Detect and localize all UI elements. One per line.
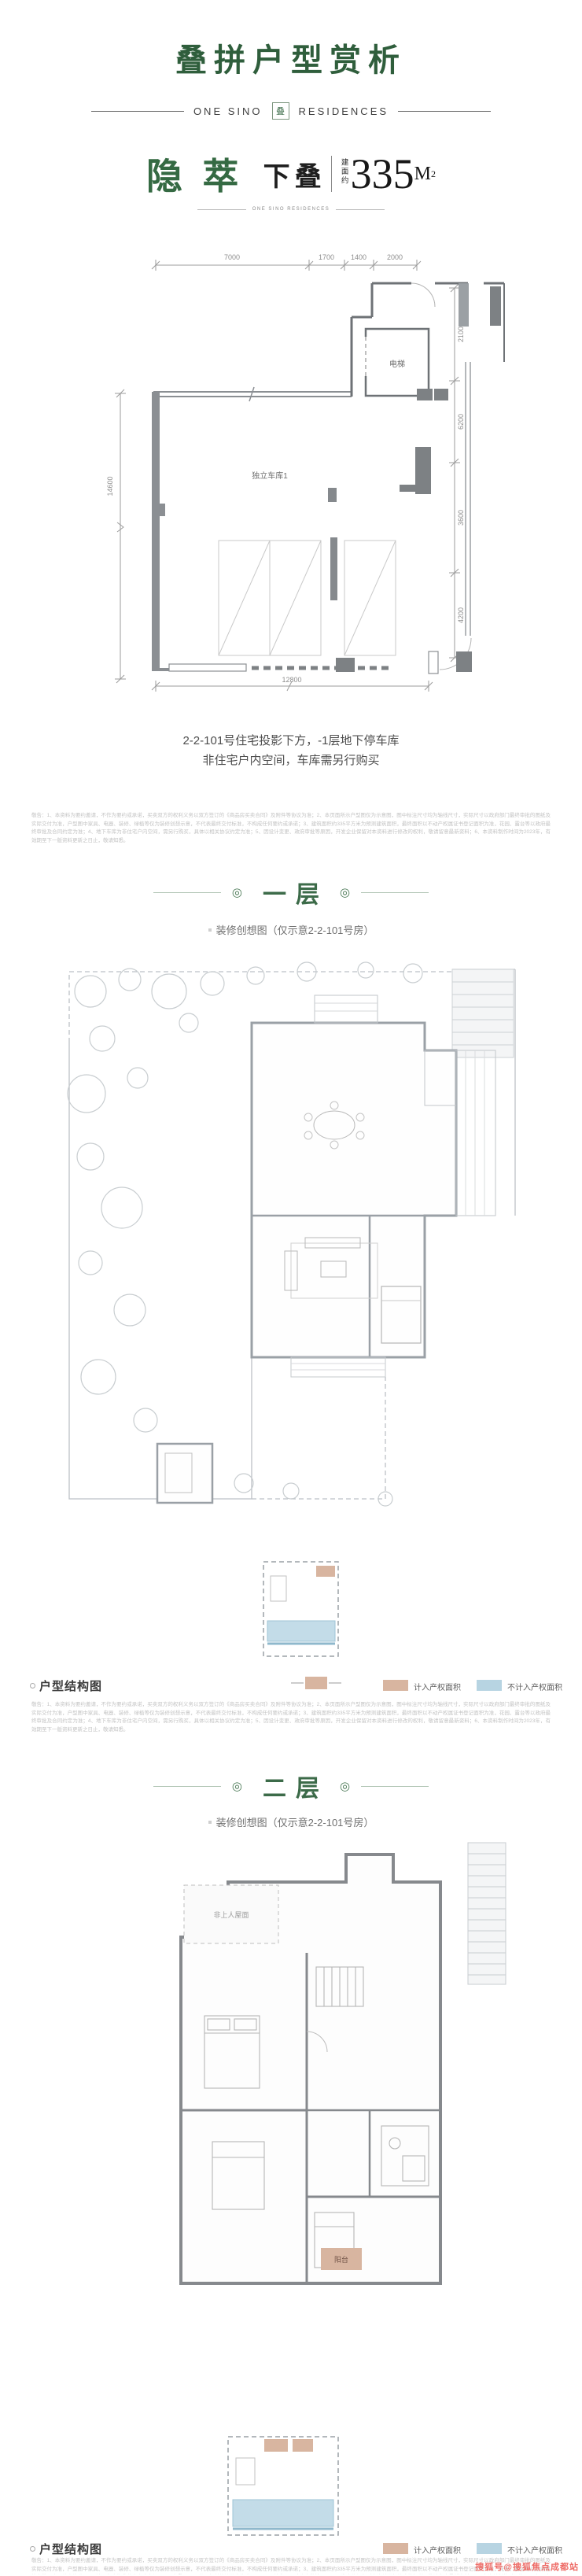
legend1-swatch-notcounted — [477, 1680, 502, 1691]
legend1-label-counted: 计入产权面积 — [414, 1681, 461, 1692]
basement-dim-left — [115, 389, 126, 683]
sec2-title: 二层 — [253, 1769, 329, 1803]
legend2-title: 户型结构图 — [39, 2541, 102, 2557]
legend2-label-notcounted: 不计入产权面积 — [507, 2544, 562, 2556]
mini-rule-left — [197, 209, 246, 210]
area-unit: M — [414, 164, 431, 185]
legend1-title: 户型结构图 — [39, 1677, 102, 1694]
svg-text:6200: 6200 — [457, 414, 465, 430]
sec1-ornament-right-icon: ◎ — [340, 887, 350, 899]
section-header-floor1: ◎ 一层 ◎ — [0, 875, 582, 910]
floor1-garden-room — [157, 1444, 212, 1503]
sec2-subtitle-dot — [208, 1821, 212, 1824]
sec1-subtitle-dot — [208, 928, 212, 932]
section-header-floor2: ◎ 二层 ◎ — [0, 1769, 582, 1803]
sec1-subtitle: 装修创想图（仅示意2-2-101号房） — [0, 922, 582, 937]
unit-divider — [331, 156, 332, 192]
brand-rule-left — [91, 111, 184, 112]
floor2-pool-structure — [228, 2437, 338, 2535]
basement-column — [328, 488, 337, 502]
legend-floor1: 户型结构图 计入产权面积 不计入产权面积 — [0, 1677, 582, 1695]
sec1-ornament-left-icon: ◎ — [232, 887, 242, 899]
disclaimer-text-2: 敬告：1、本资料为要约邀请，不作为要约或承诺，买卖双方的权利义务以双方签订的《商… — [31, 1701, 551, 1735]
brand-right-text: RESIDENCES — [299, 105, 389, 117]
basement-caption-line1: 2-2-101号住宅投影下方，-1层地下停车库 — [0, 732, 582, 751]
floor2-roof-area: 非上人屋面 — [184, 1885, 278, 1943]
unit-name: 隐萃 — [146, 148, 259, 200]
svg-text:2100: 2100 — [457, 327, 465, 342]
brand-rule-right — [398, 111, 491, 112]
floor2-balcony: 阳台 — [321, 2248, 362, 2270]
basement-walls — [152, 283, 504, 674]
area-prefix: 建面约 — [340, 158, 348, 190]
brand-line: ONE SINO 叠 RESIDENCES — [0, 102, 582, 120]
svg-text:1400: 1400 — [351, 253, 367, 261]
area-superscript: 2 — [431, 168, 436, 180]
sec2-ornament-left-icon: ◎ — [232, 1781, 242, 1792]
sec1-rule-right — [361, 892, 429, 893]
legend2-bullet-icon — [30, 2546, 35, 2552]
floor2-plan: 非上人屋面 阳台 — [110, 1835, 507, 2543]
legend1-bullet-icon — [30, 1683, 35, 1688]
disclaimer-text-1: 敬告：1、本资料为要约邀请，不作为要约或承诺，买卖双方的权利义务以双方签订的《商… — [31, 812, 551, 846]
page: 叠拼户型赏析 ONE SINO 叠 RESIDENCES 隐萃 下叠 建面约 3… — [0, 0, 582, 2576]
sec2-rule-left — [153, 1786, 221, 1787]
disclaimer-text-3: 敬告：1、本资料为要约邀请，不作为要约或承诺，买卖双方的权利义务以双方签订的《商… — [31, 2557, 551, 2574]
sec1-rule-left — [153, 892, 221, 893]
legend-floor2: 户型结构图 计入产权面积 不计入产权面积 — [0, 2541, 582, 2558]
floor1-plan — [55, 948, 535, 1696]
floor1-roof-strip — [452, 969, 514, 1057]
svg-text:4200: 4200 — [457, 607, 465, 623]
svg-text:7000: 7000 — [224, 253, 240, 261]
brand-left-text: ONE SINO — [193, 105, 263, 117]
floor1-pool-structure — [263, 1562, 341, 1689]
floor2-roof-label: 非上人屋面 — [213, 1910, 249, 1919]
basement-floor-plan: 7000 1700 1400 2000 2100 6200 3600 4200 … — [59, 227, 523, 699]
brand-seal-icon: 叠 — [272, 102, 289, 120]
unit-title-row: 隐萃 下叠 建面约 335 M 2 — [0, 148, 582, 200]
basement-parking-stalls — [219, 541, 396, 655]
svg-text:12800: 12800 — [282, 676, 301, 684]
legend1-swatch-counted — [383, 1680, 408, 1691]
legend2-label-counted: 计入产权面积 — [414, 2544, 461, 2556]
legend1-label-notcounted: 不计入产权面积 — [507, 1681, 562, 1692]
floor2-balcony-label: 阳台 — [334, 2255, 348, 2264]
floor2-roof-strip — [468, 1843, 506, 1984]
watermark: 搜狐号@搜狐焦点成都站 — [475, 2560, 579, 2573]
svg-text:2000: 2000 — [387, 253, 403, 261]
basement-garage-label: 独立车库1 — [252, 471, 288, 481]
basement-column-2 — [330, 537, 337, 600]
unit-type-label: 下叠 — [263, 155, 326, 194]
svg-text:3600: 3600 — [457, 510, 465, 526]
legend2-swatch-notcounted — [477, 2543, 502, 2554]
mini-rule-right — [336, 209, 385, 210]
svg-text:1700: 1700 — [319, 253, 334, 261]
svg-text:14600: 14600 — [106, 476, 114, 496]
sec2-rule-right — [361, 1786, 429, 1787]
sec2-subtitle: 装修创想图（仅示意2-2-101号房） — [0, 1814, 582, 1829]
basement-caption: 2-2-101号住宅投影下方，-1层地下停车库 非住宅户内空间，车库需另行购买 — [0, 732, 582, 771]
mini-brand-text: ONE SINO RESIDENCES — [252, 207, 330, 212]
area-value: 335 — [351, 153, 414, 195]
sec2-ornament-right-icon: ◎ — [340, 1781, 350, 1792]
basement-dims-top — [152, 260, 421, 271]
basement-elevator-label: 电梯 — [389, 359, 405, 369]
page-title: 叠拼户型赏析 — [0, 35, 582, 80]
mini-brand-line: ONE SINO RESIDENCES — [0, 207, 582, 212]
sec1-title: 一层 — [253, 875, 329, 910]
legend2-swatch-counted — [383, 2543, 408, 2554]
basement-caption-line2: 非住宅户内空间，车库需另行购买 — [0, 751, 582, 771]
